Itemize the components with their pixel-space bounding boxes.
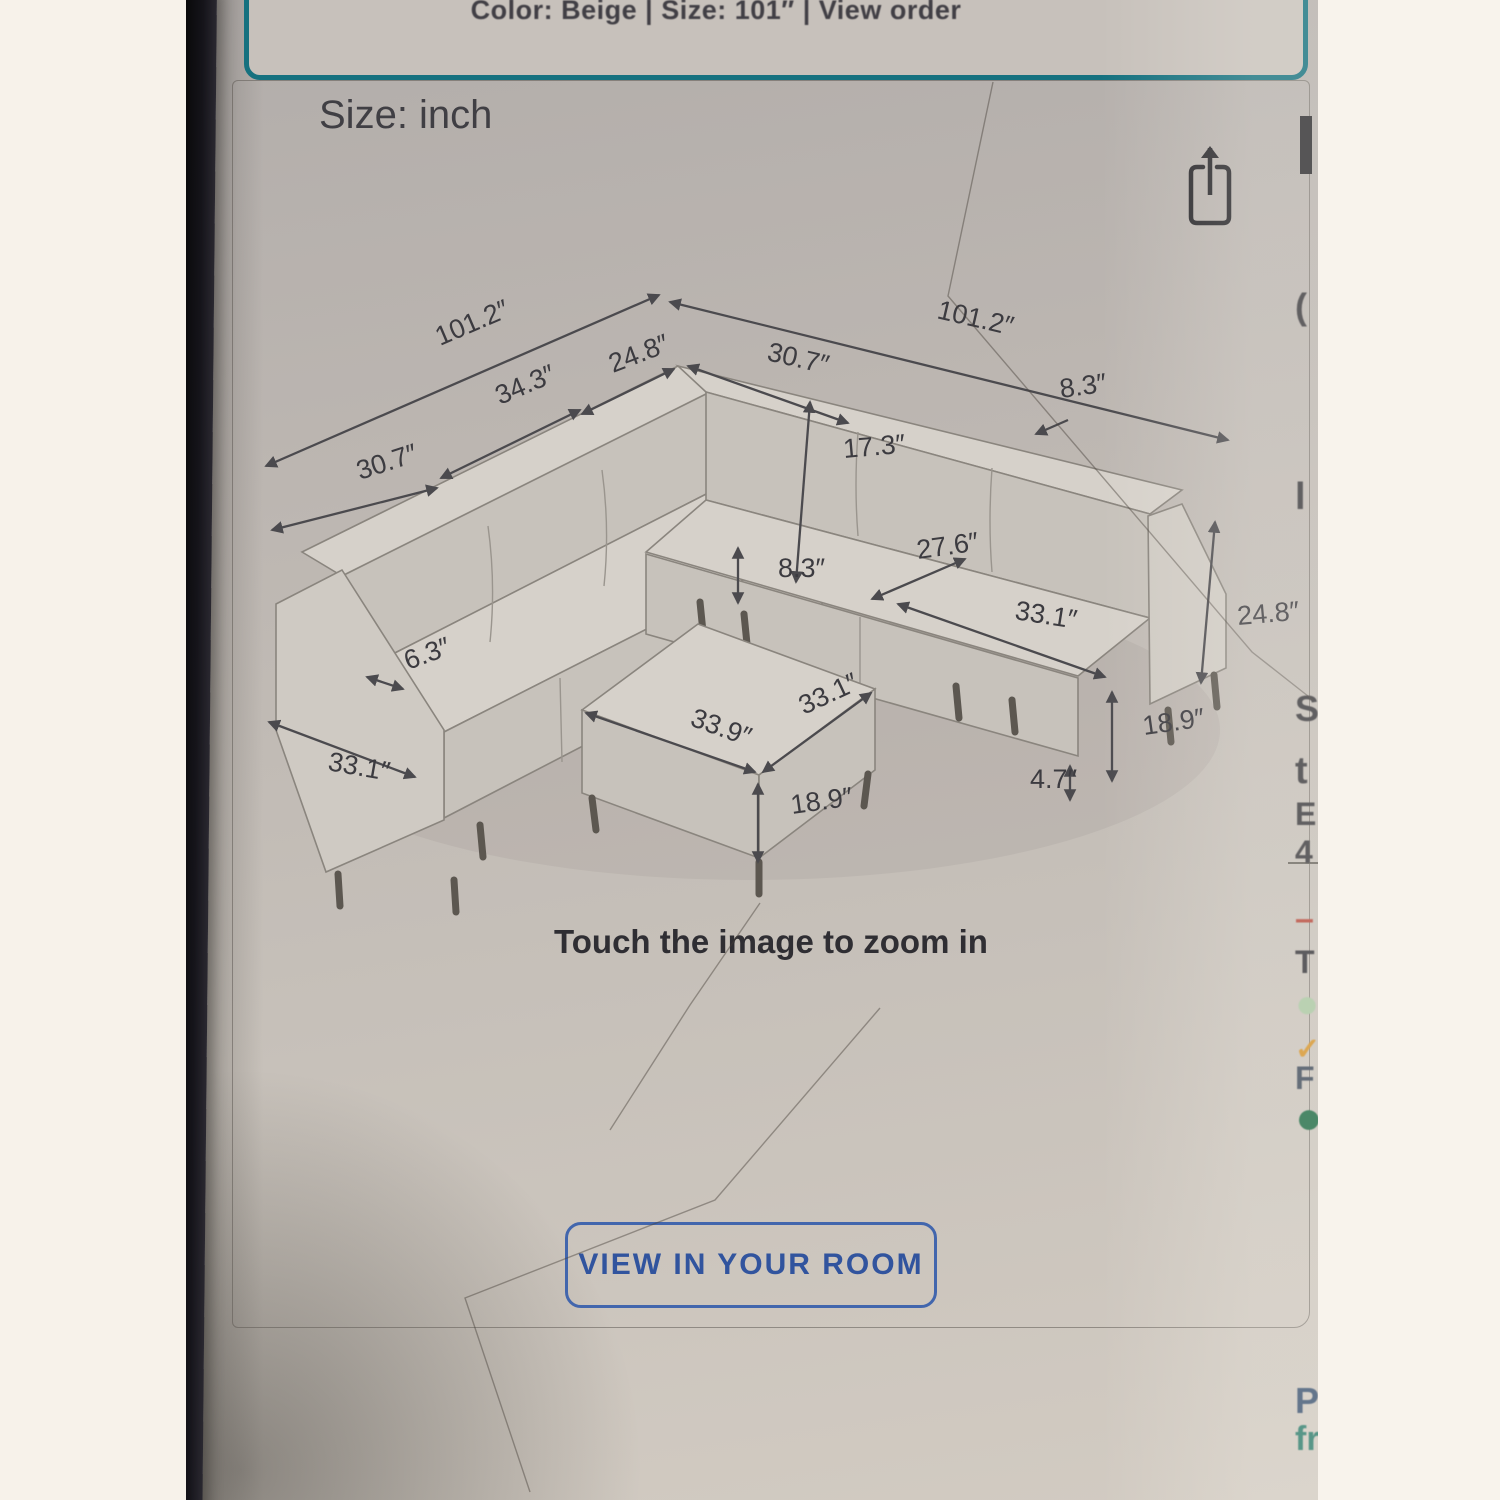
dimension-label: 4.7″: [1030, 764, 1078, 794]
right-column-text-fragment: fr: [1295, 1420, 1320, 1459]
dimension-label: 24.8″: [604, 328, 673, 378]
photo-of-phone-screen: Color: Beige | Size: 101″ | View order S…: [0, 0, 1500, 1500]
right-column-text-fragment: 4: [1295, 834, 1313, 871]
dimension-label: 17.3″: [842, 429, 907, 464]
dimension-label: 30.7″: [353, 438, 422, 486]
size-unit-label: Size: inch: [319, 93, 492, 138]
dimension-label: 101.2″: [431, 294, 514, 352]
right-column-text-fragment: (: [1295, 286, 1307, 328]
order-banner[interactable]: Color: Beige | Size: 101″ | View order: [244, 0, 1308, 80]
view-in-room-button[interactable]: VIEW IN YOUR ROOM: [565, 1222, 937, 1308]
right-column-text-fragment: –: [1295, 900, 1314, 939]
right-column-text-fragment: t: [1295, 750, 1308, 793]
sofa-dimension-diagram[interactable]: 101.2″24.8″30.7″101.2″34.3″30.7″17.3″8.3…: [230, 170, 1310, 990]
right-column-text-fragment: P: [1295, 1380, 1319, 1422]
dimension-label: 101.2″: [935, 295, 1017, 342]
right-column-text-fragment: S: [1295, 688, 1319, 730]
right-column-text-fragment: T: [1295, 944, 1315, 981]
dimension-label: 24.8″: [1236, 596, 1301, 631]
photo-background-left: [0, 0, 186, 1500]
photo-background-right: [1318, 0, 1500, 1500]
right-column-text-fragment: [1300, 116, 1312, 174]
dimension-label: 8.3″: [1058, 368, 1109, 404]
dimension-label: 34.3″: [491, 358, 560, 410]
right-column-text-fragment: l: [1295, 476, 1306, 519]
dimension-label: 30.7″: [765, 337, 833, 380]
right-column-text-fragment: ●: [1295, 982, 1319, 1027]
right-column-text-fragment: E: [1295, 796, 1316, 833]
order-banner-text[interactable]: Color: Beige | Size: 101″ | View order: [249, 0, 1303, 26]
dimension-label: 8.3″: [778, 553, 826, 583]
